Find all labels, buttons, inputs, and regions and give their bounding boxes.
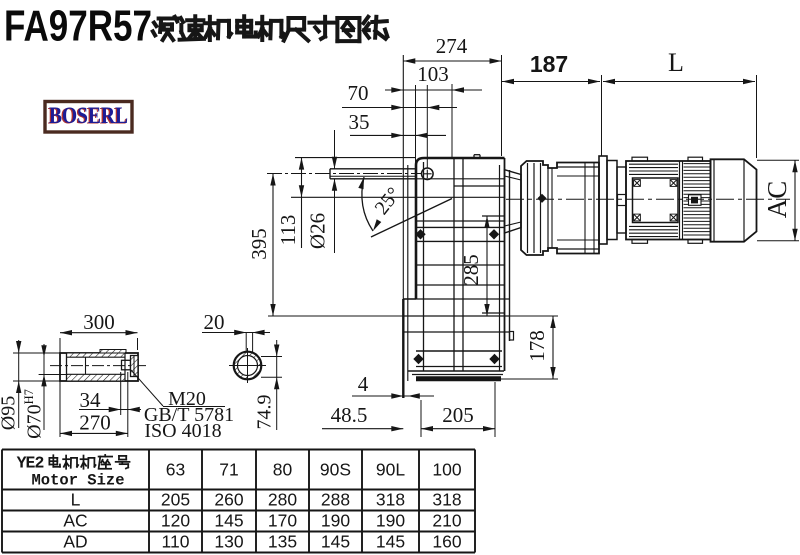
svg-text:288: 288: [321, 490, 350, 510]
svg-text:100: 100: [432, 460, 461, 480]
svg-text:20: 20: [204, 310, 225, 334]
svg-text:YE2: YE2: [17, 453, 44, 472]
svg-text:Ø95: Ø95: [0, 396, 20, 430]
svg-text:145: 145: [321, 532, 350, 552]
svg-text:190: 190: [376, 511, 405, 531]
svg-text:274: 274: [436, 34, 468, 58]
svg-text:260: 260: [214, 490, 243, 510]
svg-text:318: 318: [432, 490, 461, 510]
svg-text:FA97R57: FA97R57: [4, 2, 152, 51]
svg-text:48.5: 48.5: [331, 403, 368, 427]
svg-text:90L: 90L: [376, 460, 405, 480]
svg-text:103: 103: [417, 62, 449, 86]
svg-text:ISO 4018: ISO 4018: [144, 420, 221, 442]
svg-text:300: 300: [83, 310, 115, 334]
svg-text:187: 187: [530, 51, 568, 77]
svg-text:130: 130: [214, 532, 243, 552]
svg-text:210: 210: [432, 511, 461, 531]
svg-text:205: 205: [161, 490, 190, 510]
svg-text:395: 395: [247, 228, 271, 260]
svg-text:120: 120: [161, 511, 190, 531]
svg-text:160: 160: [432, 532, 461, 552]
svg-text:L: L: [71, 490, 81, 510]
svg-text:35: 35: [349, 110, 370, 134]
svg-text:318: 318: [376, 490, 405, 510]
svg-text:4: 4: [358, 372, 369, 396]
svg-text:AC: AC: [63, 511, 87, 531]
svg-text:Ø26: Ø26: [305, 213, 329, 249]
svg-text:BOSERL: BOSERL: [49, 103, 128, 128]
svg-text:80: 80: [273, 460, 293, 480]
svg-text:190: 190: [321, 511, 350, 531]
svg-text:135: 135: [268, 532, 297, 552]
svg-text:AD: AD: [63, 532, 87, 552]
svg-text:63: 63: [166, 460, 185, 480]
svg-text:L: L: [668, 48, 684, 77]
svg-text:113: 113: [276, 215, 300, 246]
svg-text:280: 280: [268, 490, 297, 510]
svg-text:285: 285: [459, 254, 483, 286]
svg-text:AC: AC: [762, 181, 792, 219]
svg-text:34: 34: [80, 388, 102, 412]
svg-text:178: 178: [525, 330, 549, 362]
svg-text:205: 205: [442, 403, 474, 427]
svg-text:270: 270: [79, 410, 111, 434]
svg-text:Motor Size: Motor Size: [31, 472, 124, 490]
svg-text:110: 110: [162, 532, 190, 552]
svg-text:145: 145: [376, 532, 405, 552]
svg-text:145: 145: [214, 511, 243, 531]
svg-text:71: 71: [219, 460, 238, 480]
svg-text:70: 70: [348, 81, 369, 105]
svg-text:90S: 90S: [320, 460, 351, 480]
svg-text:74.9: 74.9: [254, 395, 276, 430]
svg-text:170: 170: [268, 511, 297, 531]
